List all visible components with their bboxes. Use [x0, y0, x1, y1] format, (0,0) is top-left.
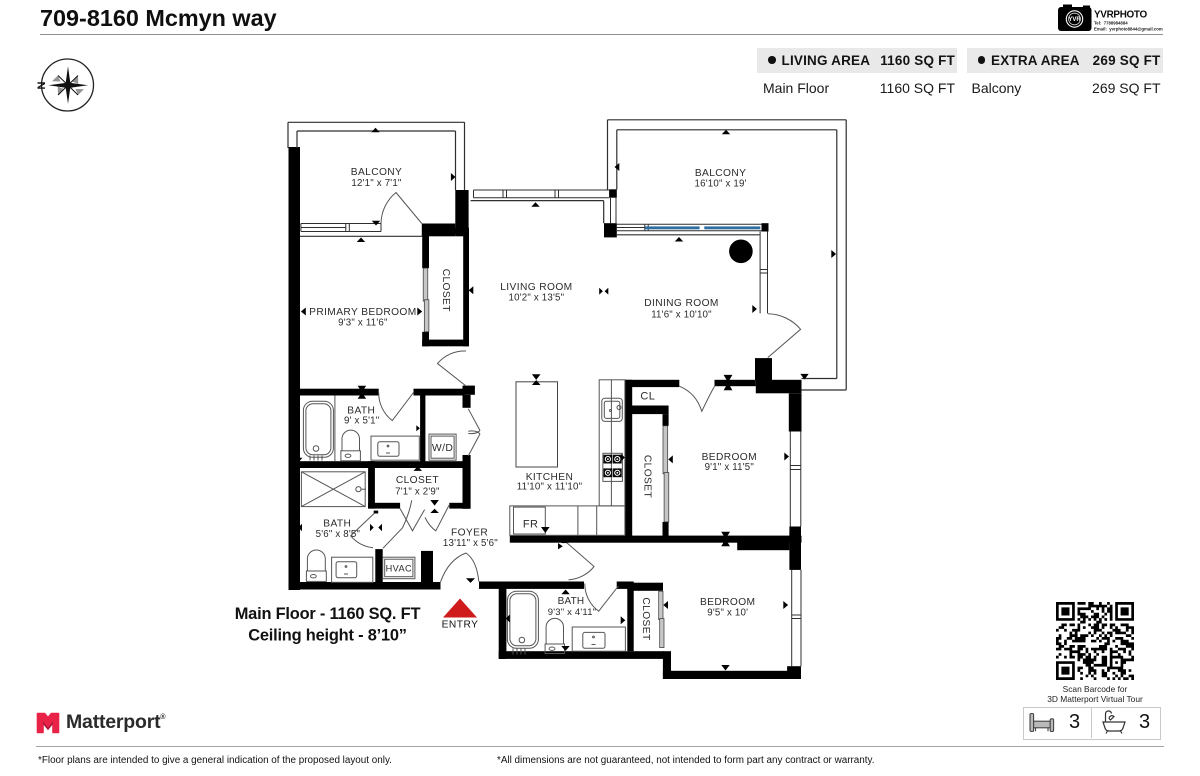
svg-text:PRIMARY BEDROOM: PRIMARY BEDROOM [309, 307, 417, 318]
svg-text:BATH: BATH [558, 596, 585, 607]
svg-text:7'1" x 2'9": 7'1" x 2'9" [395, 487, 440, 498]
svg-text:11'6" x 10'10": 11'6" x 10'10" [651, 310, 712, 321]
svg-text:HVAC: HVAC [386, 564, 412, 574]
svg-text:9' x 5'1": 9' x 5'1" [344, 416, 380, 427]
svg-text:ENTRY: ENTRY [442, 620, 479, 631]
svg-text:BALCONY: BALCONY [351, 167, 403, 178]
svg-text:CLOSET: CLOSET [440, 269, 451, 312]
svg-text:9'3" x 11'6": 9'3" x 11'6" [338, 317, 388, 328]
svg-text:CL: CL [640, 391, 655, 403]
svg-text:BEDROOM: BEDROOM [700, 597, 755, 608]
svg-text:BATH: BATH [323, 519, 351, 530]
svg-text:Main Floor - 1160 SQ. FT: Main Floor - 1160 SQ. FT [235, 605, 421, 623]
svg-text:9'3" x 4'11": 9'3" x 4'11" [548, 607, 597, 618]
svg-text:BALCONY: BALCONY [695, 168, 747, 179]
svg-text:Ceiling height - 8’10”: Ceiling height - 8’10” [248, 627, 407, 645]
svg-text:13'11" x 5'6": 13'11" x 5'6" [443, 538, 498, 549]
svg-text:CLOSET: CLOSET [640, 597, 651, 640]
svg-text:CLOSET: CLOSET [396, 475, 439, 486]
svg-text:FR: FR [523, 519, 538, 531]
svg-text:9'5" x 10': 9'5" x 10' [707, 607, 748, 618]
svg-text:BEDROOM: BEDROOM [702, 452, 757, 463]
svg-text:FOYER: FOYER [451, 528, 488, 539]
svg-text:CLOSET: CLOSET [641, 455, 652, 498]
svg-text:DINING ROOM: DINING ROOM [644, 298, 719, 309]
svg-text:10'2" x 13'5": 10'2" x 13'5" [509, 293, 565, 304]
svg-text:11'10" x 11'10": 11'10" x 11'10" [517, 482, 583, 493]
svg-text:5'6" x 8'5": 5'6" x 8'5" [316, 529, 361, 540]
svg-text:W/D: W/D [432, 443, 453, 454]
svg-text:16'10" x 19': 16'10" x 19' [695, 178, 747, 189]
svg-text:12'1" x 7'1": 12'1" x 7'1" [351, 178, 402, 189]
svg-text:9'1" x 11'5": 9'1" x 11'5" [705, 462, 755, 473]
svg-text:N: N [36, 81, 48, 89]
svg-text:LIVING ROOM: LIVING ROOM [500, 282, 572, 293]
